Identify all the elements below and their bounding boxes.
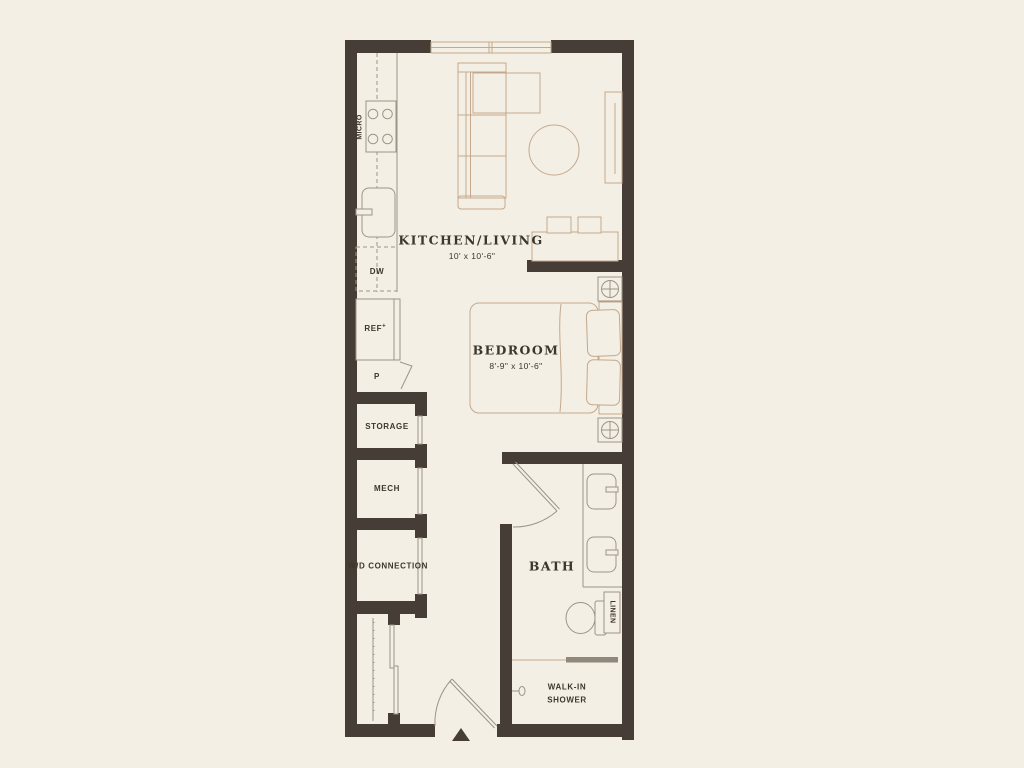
storage-door: [418, 416, 422, 444]
faucet-icon: [356, 209, 372, 215]
kitchen-counter: [377, 53, 397, 292]
faucet-icon: [606, 487, 618, 492]
door-leaf: [450, 681, 495, 728]
media-console: [532, 217, 618, 261]
bath-vanity: [583, 464, 622, 587]
wall-stub: [415, 594, 427, 618]
pantry-door: [400, 362, 412, 389]
wall-mech-wd: [345, 518, 421, 530]
ceiling-fixture-icon: [598, 418, 622, 442]
sofa: [458, 63, 540, 209]
wall-top-right: [551, 40, 634, 53]
door-leaf: [516, 462, 560, 509]
wall-stub: [388, 713, 400, 724]
sofa-body: [458, 72, 506, 198]
coffee-table: [529, 125, 579, 175]
wall-top-left: [345, 40, 431, 53]
closet-sliding-door: [394, 666, 398, 714]
microwave-label: MICRO: [355, 114, 364, 139]
pantry-label: P: [374, 372, 380, 382]
wall-wd-closet: [345, 601, 421, 614]
wall-stub: [415, 444, 427, 468]
bath-title: BATH: [529, 559, 575, 574]
storage-label: STORAGE: [365, 422, 409, 432]
wall-stub: [415, 514, 427, 538]
shower-head-icon: [519, 687, 525, 696]
ceiling-fixture-icon: [598, 277, 622, 301]
bedroom-dims: 8'-9" x 10'-6": [489, 361, 542, 371]
wall-stub: [388, 613, 400, 625]
shower-curb: [566, 657, 618, 663]
sofa-back: [458, 63, 506, 72]
entry-closet: [373, 618, 398, 721]
entry-arrow-icon: [452, 728, 470, 741]
stove-icon: [366, 101, 396, 152]
linen-label: LINEN: [607, 601, 616, 624]
kitchen-sink-icon: [356, 188, 395, 237]
toilet-icon: [566, 601, 606, 635]
entry-door: [435, 679, 497, 741]
mech-label: MECH: [374, 484, 400, 494]
wall-bath-left: [500, 524, 512, 724]
wall-right: [622, 43, 634, 740]
wall-bottom-right: [497, 724, 634, 737]
pillow: [586, 309, 621, 356]
pillow: [586, 360, 620, 406]
door-swing-arc: [513, 511, 557, 527]
faucet-icon: [606, 550, 618, 555]
wall-living-bedroom-divider: [527, 260, 623, 272]
window: [431, 42, 551, 53]
wall-bottom-left: [345, 724, 435, 737]
walk-in-shower-label: WALK-IN SHOWER: [535, 682, 599, 707]
bath-door: [513, 462, 560, 527]
floor-plan-drawing: [0, 0, 1024, 768]
bedroom-title: BEDROOM: [473, 343, 560, 358]
dishwasher-label: DW: [370, 267, 385, 277]
mech-door: [418, 468, 422, 514]
wall-left: [345, 40, 357, 737]
closet-sliding-door: [390, 625, 394, 668]
wd-connection-label: W/D CONNECTION: [345, 559, 431, 574]
kitchen-living-title: KITCHEN/LIVING: [398, 233, 543, 248]
floor-plan: MICRO DW REF+ P STORAGE MECH W/D CONNECT…: [0, 0, 1024, 768]
wall-bath-top: [502, 452, 634, 464]
wall-pantry-storage: [345, 392, 421, 404]
tv-console: [605, 92, 622, 183]
wall-stub: [415, 392, 427, 416]
door-leaf: [452, 679, 497, 726]
bed: [470, 302, 622, 414]
kitchen-living-dims: 10' x 10'-6": [449, 251, 496, 261]
wall-storage-mech: [345, 448, 421, 460]
door-leaf: [513, 464, 557, 511]
toilet-bowl: [566, 603, 595, 634]
mattress: [470, 303, 598, 413]
refrigerator-label: REF+: [364, 323, 385, 334]
door-swing-arc: [435, 679, 452, 726]
